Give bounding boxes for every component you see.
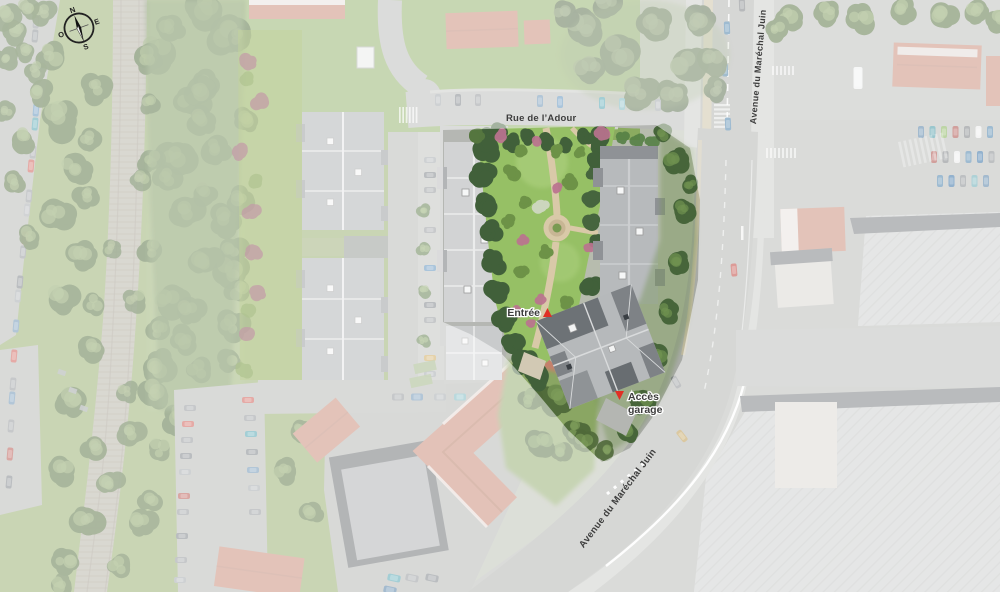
svg-text:Entrée: Entrée: [507, 307, 540, 319]
svg-text:Accès: Accès: [628, 391, 659, 403]
svg-text:Rue de l’Adour: Rue de l’Adour: [506, 113, 576, 124]
svg-text:garage: garage: [628, 404, 663, 416]
